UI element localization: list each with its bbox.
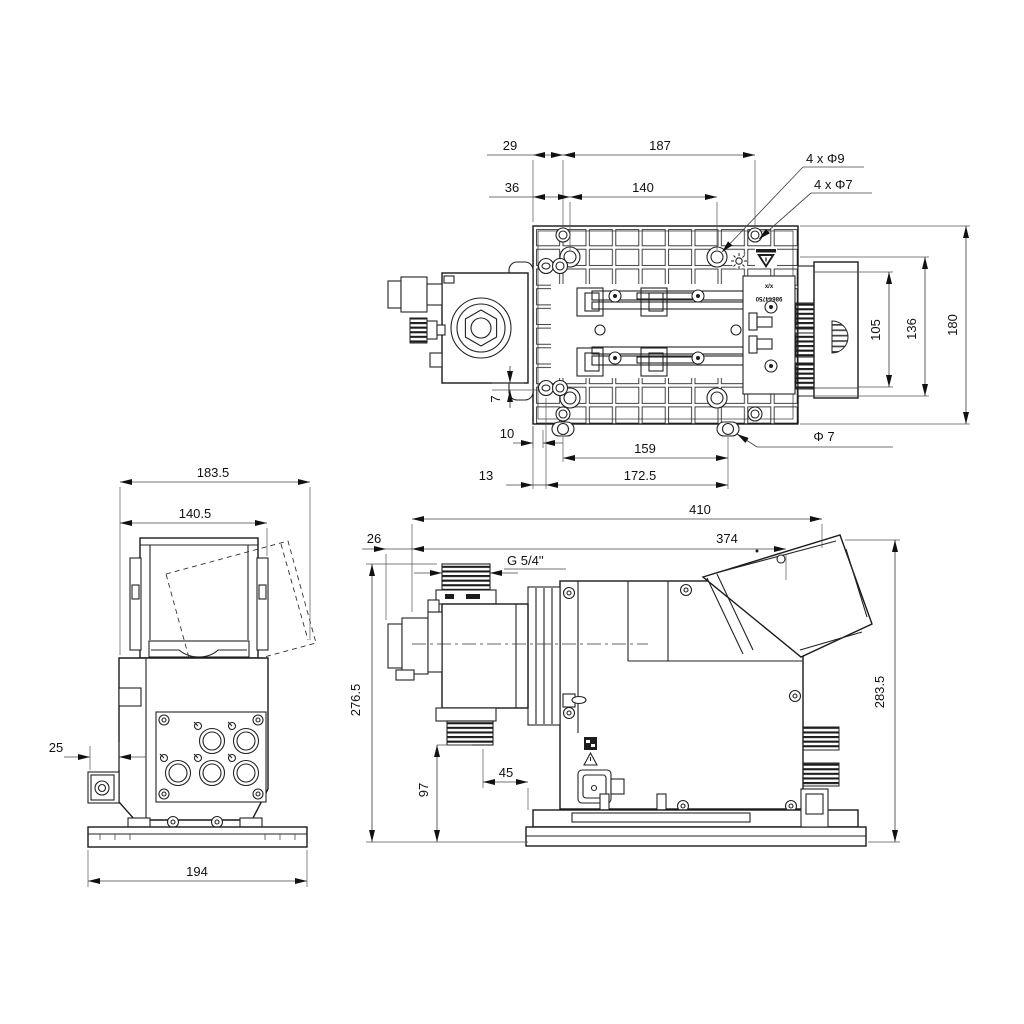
cable-gland-front	[388, 600, 442, 680]
warning-triangle-icon	[755, 247, 777, 268]
dim-105: 105	[858, 272, 893, 387]
dim-159: 159	[563, 437, 728, 462]
knurled-knob	[410, 318, 427, 343]
dim-36-label: 36	[505, 180, 519, 195]
side-body	[88, 658, 268, 820]
dim-180-label: 180	[945, 314, 960, 336]
side-base	[88, 817, 307, 848]
mounting-bracket	[88, 772, 119, 803]
dim-26: 26	[362, 531, 412, 620]
side-cover	[130, 538, 316, 676]
dim-45-label: 45	[499, 765, 513, 780]
callout-phi7-bottom: Φ 7	[737, 429, 893, 447]
dim-45: 45	[483, 749, 528, 810]
dim-10-label: 10	[500, 426, 514, 441]
discharge-thread	[442, 564, 490, 590]
cover-hole	[777, 555, 785, 563]
pump-head-top	[388, 262, 533, 400]
dosing-head	[442, 604, 528, 708]
dim-410-label: 410	[689, 502, 711, 517]
callout-thread-label: G 5/4''	[507, 553, 544, 568]
technical-drawing-canvas: x/x 98644750	[0, 0, 1024, 1024]
dim-29: 29	[487, 138, 563, 228]
plate-marking-number: 98644750	[755, 295, 782, 301]
dim-97: 97	[416, 745, 472, 842]
adjust-knobs	[803, 727, 839, 786]
front-view: 410 26 374 G 5/4'' 276.5 97	[348, 502, 900, 846]
dim-187-label: 187	[649, 138, 671, 153]
dim-136-label: 136	[904, 318, 919, 340]
gland-panel	[156, 712, 266, 802]
callout-4xphi9-label: 4 x Φ9	[806, 151, 845, 166]
dim-140_5-label: 140.5	[179, 506, 212, 521]
suction-thread	[447, 721, 493, 745]
cable-gland-top	[388, 281, 401, 308]
sun-icon	[731, 253, 747, 269]
dim-276_5-label: 276.5	[348, 684, 363, 717]
dim-105-label: 105	[868, 319, 883, 341]
plate-marking-xx: x/x	[765, 284, 774, 290]
control-panel-top	[796, 262, 858, 398]
dim-29-label: 29	[503, 138, 517, 153]
dim-159-label: 159	[634, 441, 656, 456]
callout-4xphi7-label: 4 x Φ7	[814, 177, 853, 192]
dim-26-label: 26	[367, 531, 381, 546]
top-view: x/x 98644750	[388, 138, 970, 489]
dim-13-label: 13	[479, 468, 493, 483]
callout-phi7-bottom-label: Φ 7	[813, 429, 834, 444]
dim-7-label: 7	[488, 395, 503, 402]
dim-97-label: 97	[416, 783, 431, 797]
dim-140-label: 140	[632, 180, 654, 195]
dim-194-label: 194	[186, 864, 208, 879]
dim-187: 187	[563, 138, 755, 228]
side-view: 183.5 140.5 25 194	[49, 465, 316, 887]
dim-183_5-label: 183.5	[197, 465, 230, 480]
dim-194: 194	[88, 850, 307, 887]
plate-module-area: x/x 98644750	[743, 276, 795, 394]
dim-374-label: 374	[716, 531, 738, 546]
dim-283_5-label: 283.5	[872, 676, 887, 709]
technical-drawing-page: x/x 98644750	[0, 0, 1024, 1024]
dim-172_5: 172.5	[546, 462, 728, 489]
dim-25-label: 25	[49, 740, 63, 755]
dim-172_5-label: 172.5	[624, 468, 657, 483]
